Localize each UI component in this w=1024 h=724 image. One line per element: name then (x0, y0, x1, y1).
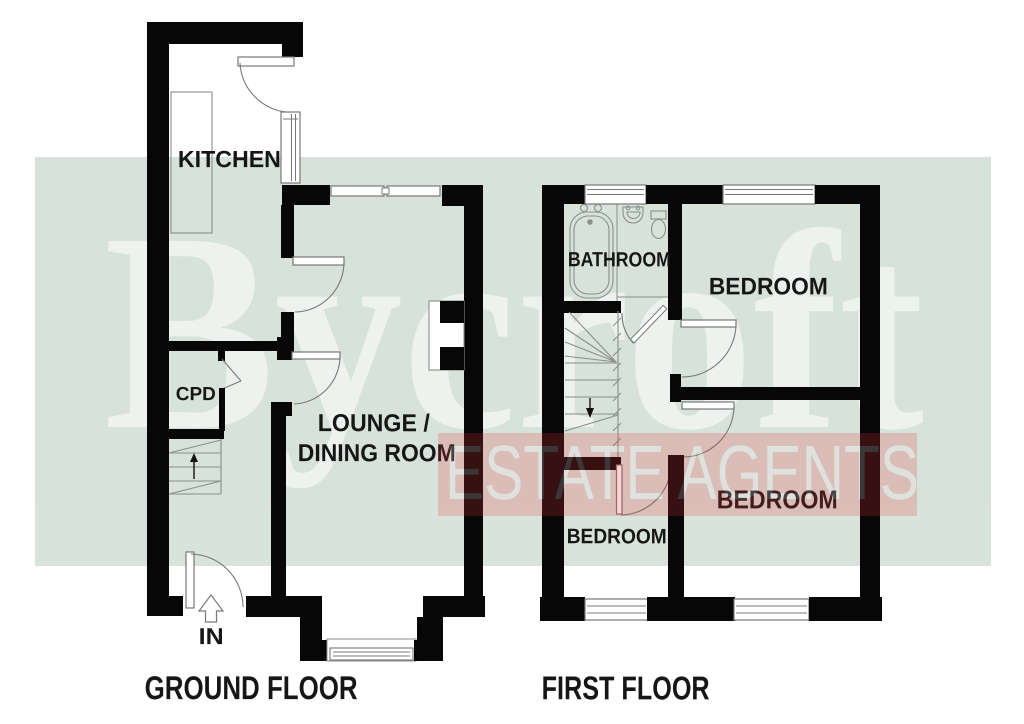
svg-text:IN: IN (199, 623, 224, 649)
svg-text:DINING ROOM: DINING ROOM (298, 440, 456, 467)
svg-text:FIRST FLOOR: FIRST FLOOR (542, 669, 710, 706)
svg-text:BEDROOM: BEDROOM (709, 273, 828, 300)
svg-text:CPD: CPD (176, 384, 216, 405)
svg-text:BATHROOM: BATHROOM (568, 248, 671, 271)
svg-text:KITCHEN: KITCHEN (178, 146, 281, 172)
svg-text:ESTATE AGENTS: ESTATE AGENTS (445, 430, 919, 516)
svg-text:BEDROOM: BEDROOM (567, 525, 667, 548)
svg-text:LOUNGE /: LOUNGE / (318, 410, 430, 437)
svg-text:GROUND FLOOR: GROUND FLOOR (145, 669, 358, 706)
